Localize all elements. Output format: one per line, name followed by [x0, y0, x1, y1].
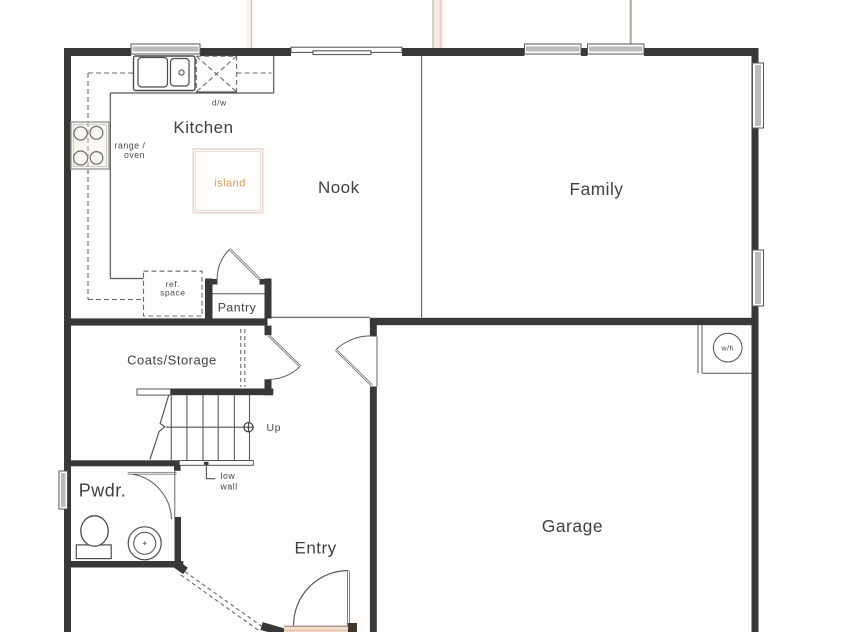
svg-text:Nook: Nook: [318, 178, 360, 197]
svg-text:island: island: [214, 177, 246, 189]
svg-text:oven: oven: [124, 150, 145, 160]
svg-text:space: space: [160, 287, 185, 297]
svg-text:Entry: Entry: [295, 539, 337, 558]
svg-text:Family: Family: [570, 179, 624, 199]
svg-text:wall: wall: [220, 481, 238, 491]
svg-text:Coats/Storage: Coats/Storage: [127, 353, 217, 368]
svg-text:Pwdr.: Pwdr.: [79, 481, 127, 501]
svg-text:w/h: w/h: [720, 343, 734, 352]
svg-text:Pantry: Pantry: [218, 301, 257, 315]
svg-text:Garage: Garage: [542, 516, 603, 536]
svg-text:Up: Up: [267, 422, 281, 434]
svg-text:low: low: [221, 471, 236, 481]
svg-text:Kitchen: Kitchen: [173, 118, 233, 137]
svg-text:d/w: d/w: [212, 97, 227, 107]
